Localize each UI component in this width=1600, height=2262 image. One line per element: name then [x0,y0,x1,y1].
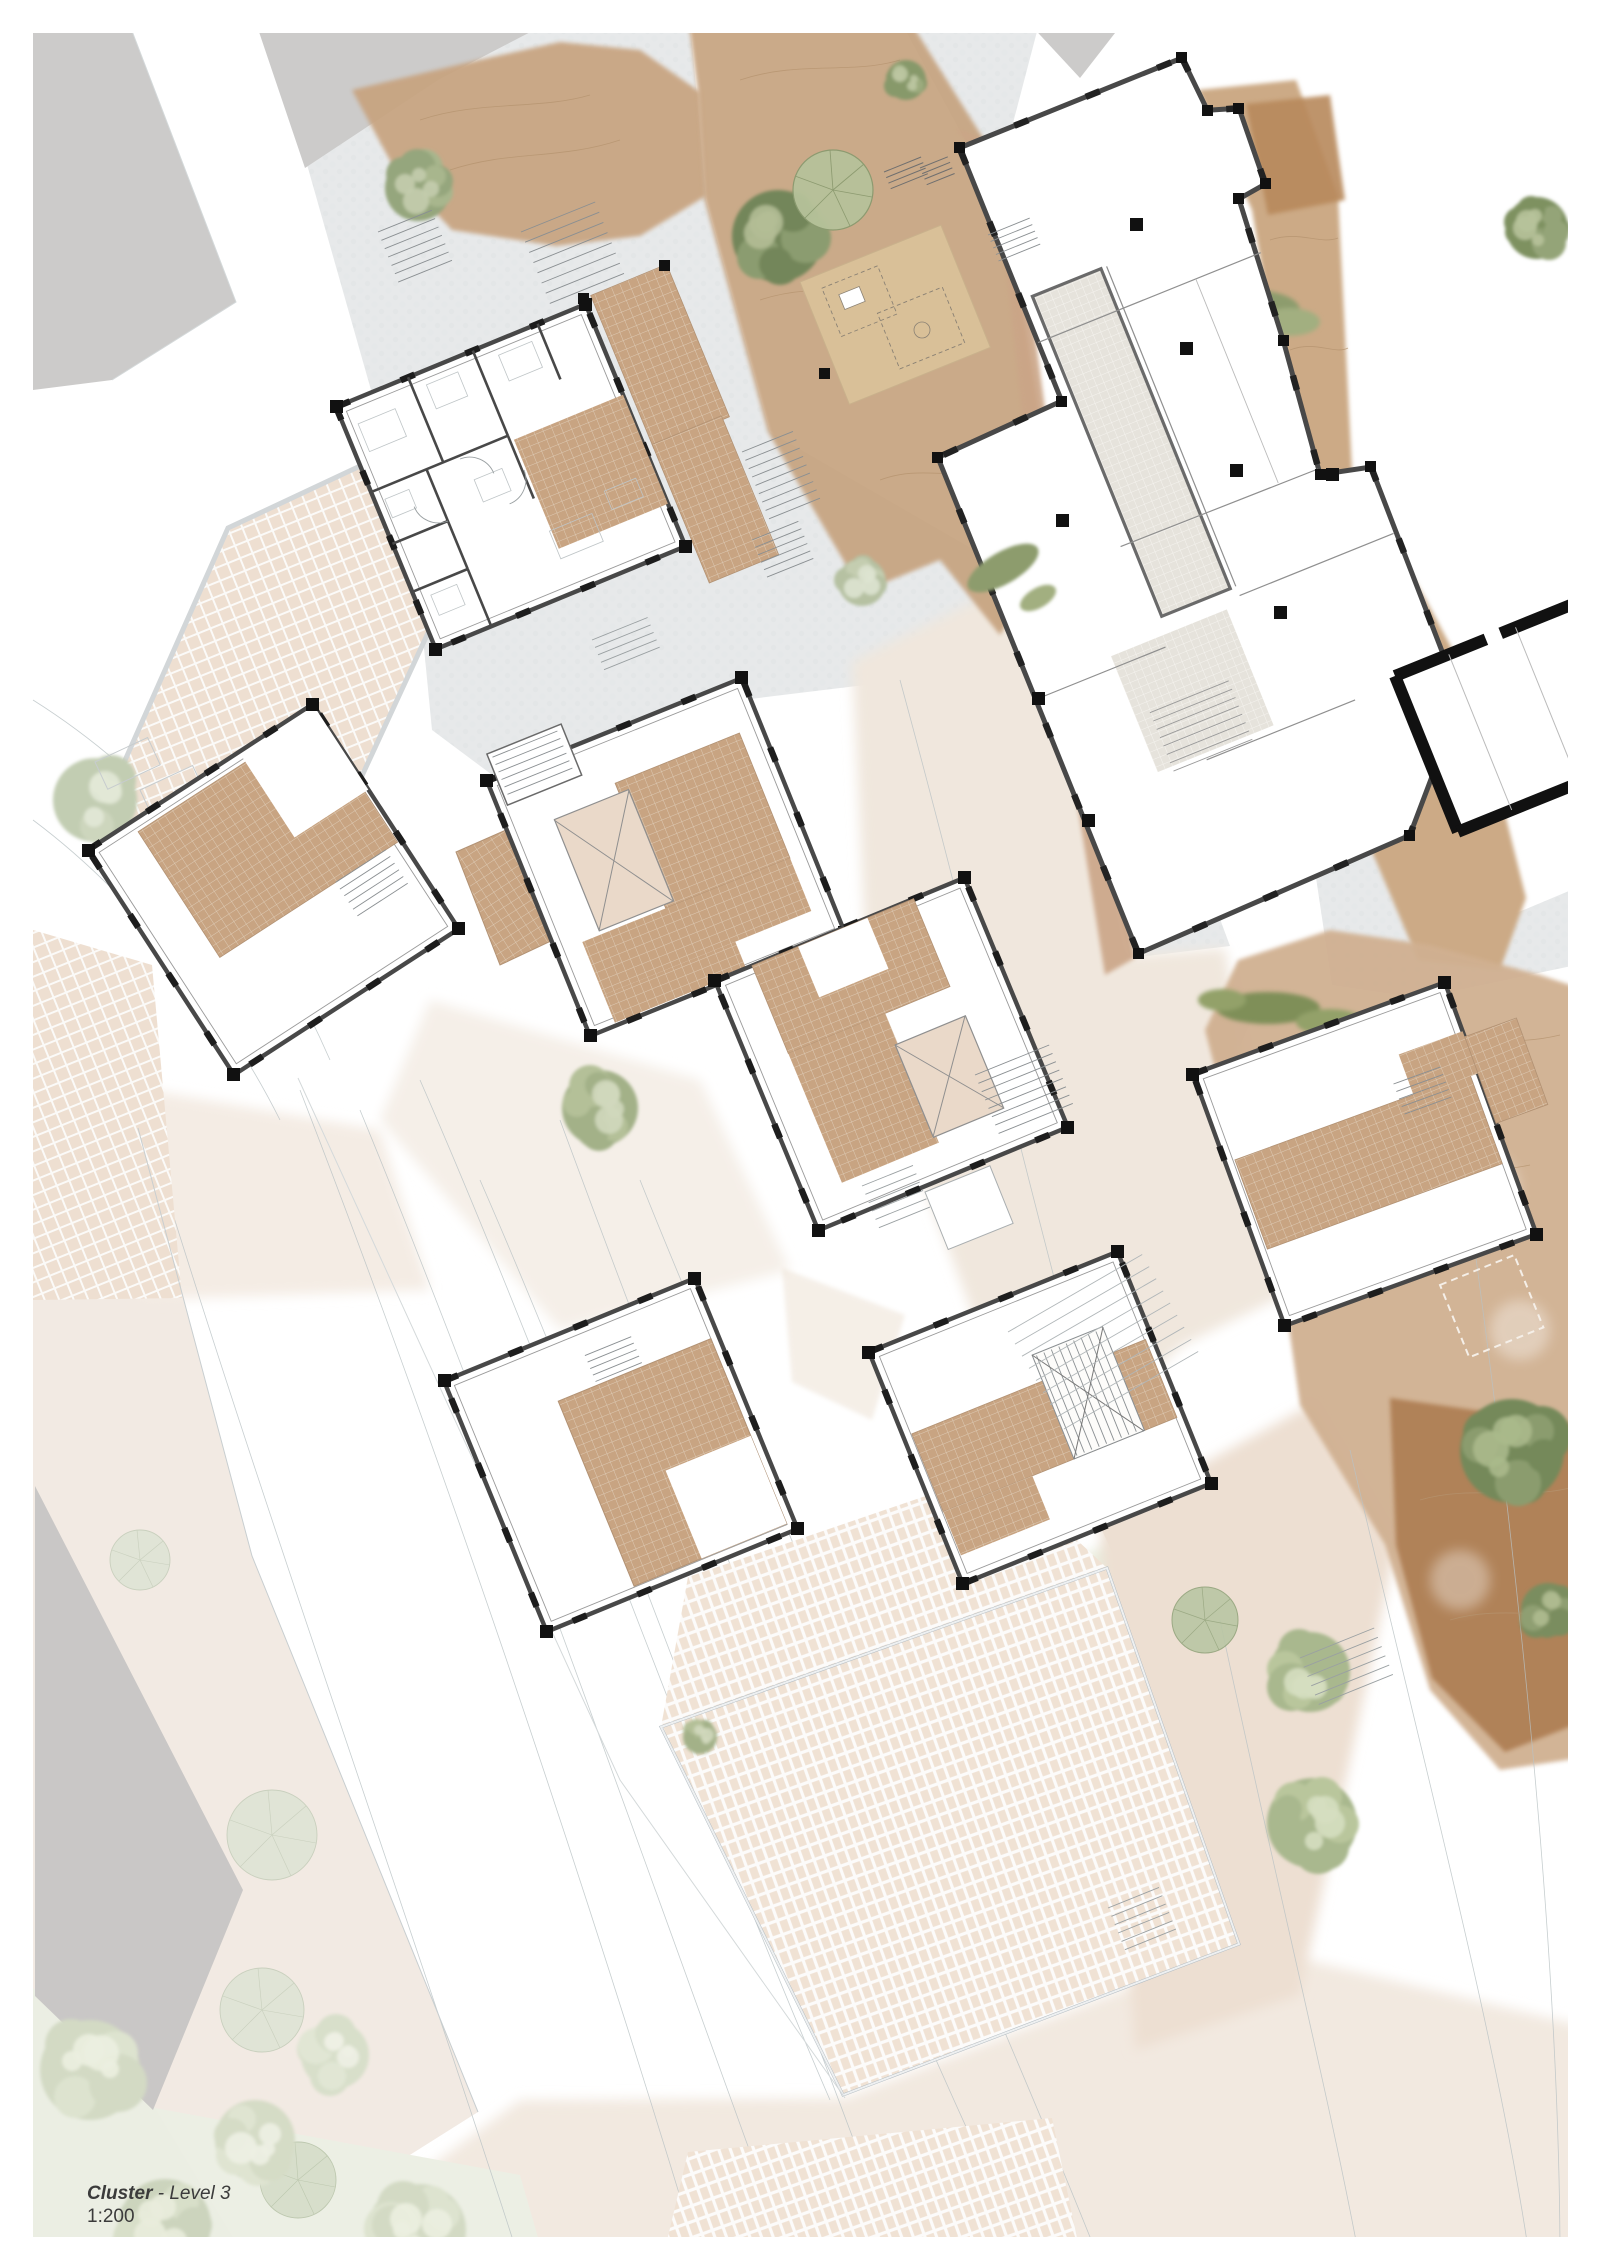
svg-text:1:200: 1:200 [87,2206,135,2227]
svg-text:Cluster - Level 3: Cluster - Level 3 [87,2183,231,2204]
